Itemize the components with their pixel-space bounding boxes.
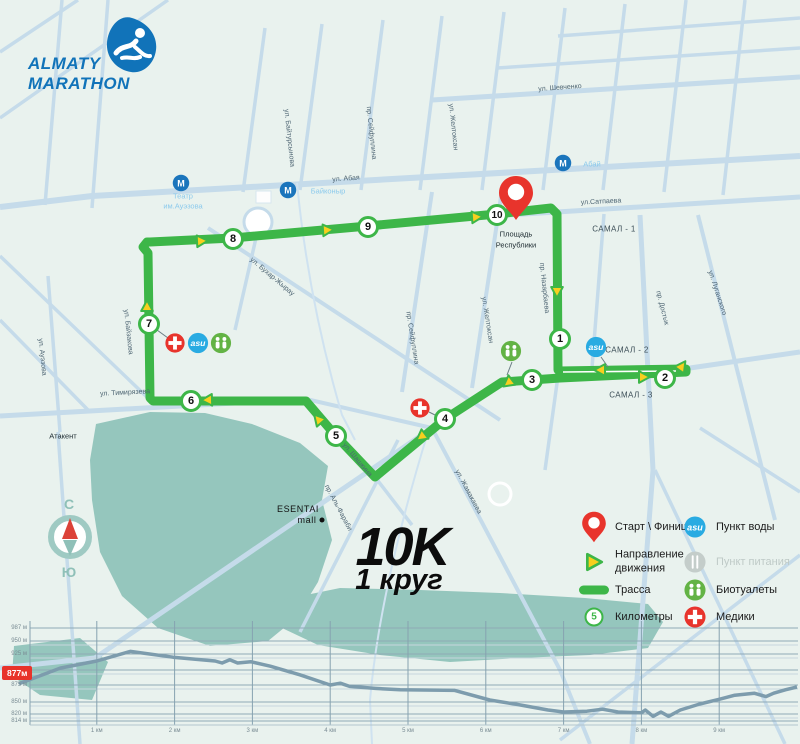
legend-label: Старт \ Финиш [615, 521, 690, 533]
x-tick-label: 3 км [247, 728, 259, 734]
district-label: САМАЛ - 2 [605, 346, 649, 355]
legend-bio-icon [684, 579, 707, 602]
svg-text:М: М [559, 158, 567, 168]
metro-icon: М [554, 154, 572, 172]
legend-label: Пункт воды [716, 521, 774, 533]
poi-label: ESENTAI [277, 504, 319, 514]
poi-label: mall [298, 515, 317, 525]
y-tick-label: 925 м [1, 651, 27, 657]
km-marker: 8 [222, 228, 244, 250]
y-tick-label: 850 м [1, 699, 27, 705]
poi-label: Площадь [500, 230, 533, 239]
direction-arrow-icon [320, 222, 336, 238]
direction-arrow-icon [469, 209, 485, 225]
legend-label: Километры [615, 611, 673, 623]
km-marker: 5 [325, 425, 347, 447]
direction-arrow-icon [140, 299, 155, 314]
legend-km-circle: 5 [585, 608, 604, 627]
medic-icon [410, 398, 431, 419]
legend-label: Трасса [615, 584, 650, 596]
x-tick-label: 7 км [558, 728, 570, 734]
y-tick-label: 820 м [1, 711, 27, 717]
mall-dot [320, 518, 325, 523]
legend-label: Медики [716, 611, 755, 623]
poi-label: Республики [496, 241, 537, 250]
start-elevation-badge: 877м [2, 666, 32, 680]
legend-track-bar [579, 586, 609, 595]
runner-icon [104, 16, 160, 74]
district-label: САМАЛ - 3 [609, 391, 653, 400]
y-tick-label: 875 м [1, 682, 27, 688]
poi-label: Байконыр [311, 187, 346, 196]
almaty-marathon-logo: ALMATY MARATHON [22, 14, 212, 104]
bio-icon [210, 332, 232, 354]
km-marker: 2 [654, 367, 676, 389]
x-tick-label: 1 км [91, 728, 103, 734]
bio-icon [500, 340, 522, 362]
km-marker: 6 [180, 390, 202, 412]
logo-word-1: ALMATY [28, 54, 101, 74]
km-marker: 1 [549, 328, 571, 350]
legend-label: Биотуалеты [716, 584, 777, 596]
water-icon: asu [585, 336, 607, 358]
medic-icon [165, 333, 186, 354]
legend-km-icon: 5 [585, 608, 604, 627]
y-tick-label: 814 м [1, 718, 27, 724]
svg-text:asu: asu [687, 522, 703, 532]
km-marker: 3 [521, 369, 543, 391]
direction-arrow-icon [194, 233, 210, 249]
svg-text:asu: asu [191, 338, 207, 348]
compass-south-label: Ю [62, 564, 76, 580]
svg-text:М: М [177, 178, 185, 188]
direction-arrow-icon [637, 370, 652, 385]
km-marker: 7 [138, 313, 160, 335]
y-tick-label: 987 м [1, 625, 27, 631]
direction-arrow-icon [593, 363, 608, 378]
svg-text:asu: asu [589, 342, 605, 352]
metro-icon: М [279, 181, 297, 199]
metro-icon: М [172, 174, 190, 192]
lap-subtitle: 1 круг [355, 564, 442, 597]
svg-text:М: М [284, 185, 292, 195]
x-tick-label: 2 км [169, 728, 181, 734]
logo-word-2: MARATHON [28, 74, 130, 94]
x-tick-label: 4 км [324, 728, 336, 734]
x-tick-label: 8 км [636, 728, 648, 734]
poi-label: Атакент [49, 432, 76, 441]
district-label: САМАЛ - 1 [592, 225, 636, 234]
legend-track-icon [579, 586, 609, 595]
legend-label: Пункт питания [716, 556, 790, 568]
legend-water-icon: asu [684, 516, 707, 539]
direction-arrow-icon [550, 285, 565, 300]
compass-north-label: С [64, 496, 74, 512]
legend-food-icon [684, 551, 707, 574]
x-tick-label: 6 км [480, 728, 492, 734]
legend-medic-icon [684, 606, 707, 629]
water-icon: asu [187, 332, 209, 354]
poi-label: Театр [173, 192, 193, 201]
poi-label: Абай [583, 160, 601, 169]
y-tick-label: 950 м [1, 638, 27, 644]
x-tick-label: 5 км [402, 728, 414, 734]
legend-pin-icon [582, 511, 607, 543]
x-tick-label: 9 км [713, 728, 725, 734]
km-marker: 9 [357, 216, 379, 238]
start-finish-pin-icon [498, 175, 534, 221]
legend-arrow-icon [584, 552, 604, 572]
marathon-route-map: 987 м950 м925 м900 м875 м850 м820 м814 м… [0, 0, 800, 744]
compass-needle [59, 517, 81, 557]
poi-label: им.Ауэзова [163, 202, 202, 211]
km-marker: 4 [434, 408, 456, 430]
